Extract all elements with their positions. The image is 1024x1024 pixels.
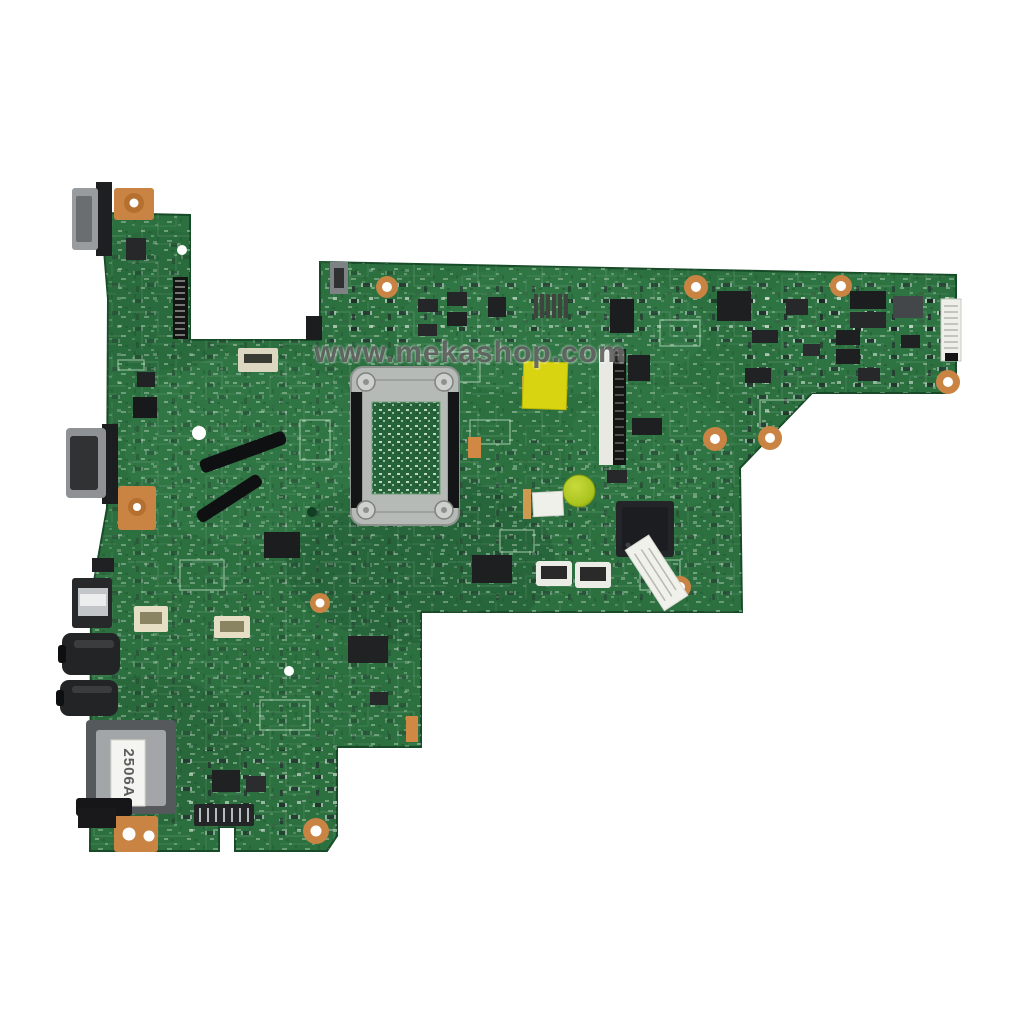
audio-jack-1 — [58, 633, 120, 675]
vga-port-2 — [66, 424, 118, 504]
vga-port — [72, 182, 112, 256]
chip — [126, 238, 146, 260]
chip — [212, 770, 240, 792]
chip — [717, 291, 751, 321]
chip — [264, 532, 300, 558]
cpu-socket-bracket — [351, 367, 459, 525]
qc-green-dot-sticker — [563, 475, 595, 507]
chip — [836, 349, 860, 364]
chip — [133, 397, 157, 418]
chip — [610, 299, 634, 333]
audio-jack-2 — [56, 680, 118, 716]
ffc-connector-bottom-1 — [536, 561, 572, 586]
chip — [858, 368, 880, 381]
fan-connector — [214, 616, 250, 638]
socket-rail-left — [351, 392, 362, 508]
socket-window — [372, 402, 440, 494]
white-sticker — [532, 491, 563, 517]
display-cable-connector — [173, 277, 188, 339]
chip — [836, 330, 860, 345]
chip — [786, 299, 808, 315]
chip — [370, 692, 388, 705]
chip — [901, 335, 920, 348]
left-edge-chip — [92, 558, 114, 572]
chip — [850, 312, 886, 328]
chip — [628, 355, 650, 381]
chip — [752, 330, 778, 343]
chip — [472, 555, 512, 583]
chip — [418, 299, 438, 312]
mounting-bracket-mid — [118, 486, 156, 530]
solder-pad — [406, 716, 418, 742]
chip — [893, 296, 923, 318]
socket-rail-right — [448, 392, 459, 508]
chip — [418, 324, 437, 336]
chip — [488, 297, 506, 317]
mounting-bracket-bottom — [114, 816, 158, 852]
copper-strip — [523, 489, 531, 519]
speaker-connector — [134, 606, 168, 632]
ffc-connector — [238, 348, 278, 372]
mounting-bracket-top — [114, 188, 154, 220]
chip — [348, 636, 388, 663]
chip — [803, 344, 820, 356]
chip — [850, 291, 886, 309]
edge-connector — [78, 808, 116, 828]
chip — [745, 368, 771, 383]
motherboard-photo — [0, 0, 1024, 1024]
chip — [137, 372, 155, 387]
pin-header — [194, 804, 254, 826]
chip — [607, 470, 627, 483]
header-connector-top — [330, 262, 348, 294]
chip — [447, 292, 467, 306]
sd-card-slot-label: 2506A — [111, 740, 145, 806]
product-photo: www.mekashop.com 2506A — [0, 0, 1024, 1024]
usb-port — [72, 578, 112, 628]
solder-pad — [468, 437, 481, 458]
chip — [632, 418, 662, 435]
watermark-text: www.mekashop.com — [314, 336, 614, 372]
chip — [246, 776, 266, 792]
chip — [447, 312, 467, 326]
ribbon-connector-right — [941, 299, 961, 361]
ffc-connector-bottom-2 — [575, 562, 611, 588]
